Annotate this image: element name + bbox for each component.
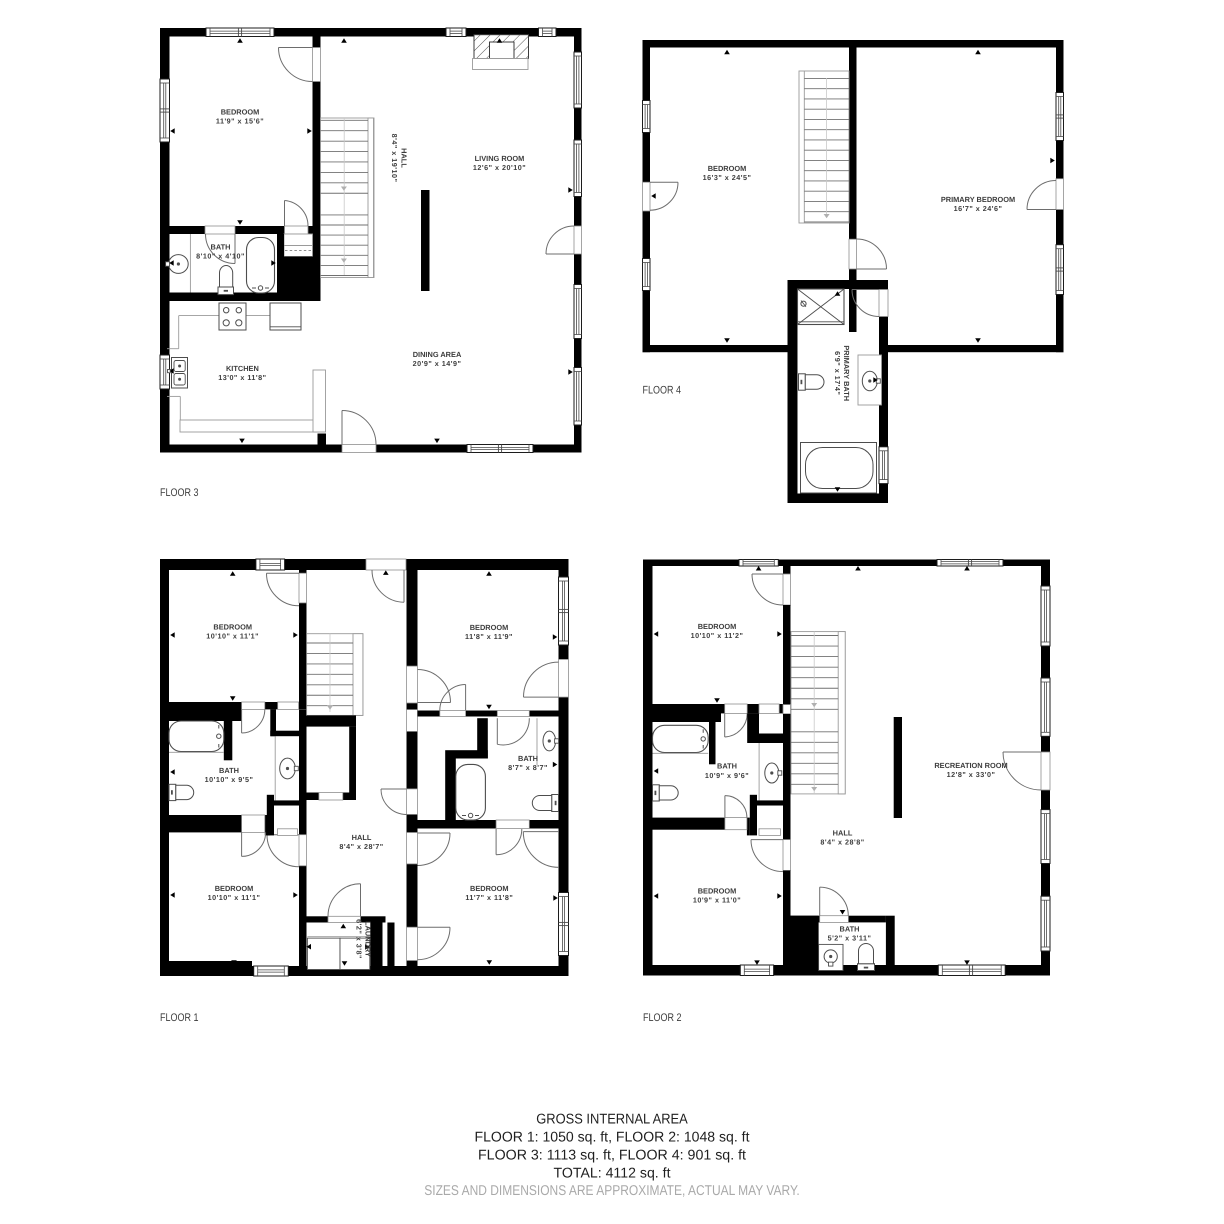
svg-text:10'10" x 11'1": 10'10" x 11'1" [206, 632, 259, 641]
svg-text:PRIMARY BATH: PRIMARY BATH [842, 345, 851, 401]
svg-text:KITCHEN: KITCHEN [226, 364, 259, 373]
svg-text:BATH: BATH [717, 762, 737, 771]
svg-text:BEDROOM: BEDROOM [470, 623, 509, 632]
svg-text:10'9" x 9'6": 10'9" x 9'6" [705, 771, 749, 780]
svg-text:LIVING ROOM: LIVING ROOM [475, 154, 525, 163]
svg-text:11'9" x 15'6": 11'9" x 15'6" [216, 117, 264, 126]
svg-text:BEDROOM: BEDROOM [698, 887, 737, 896]
svg-text:12'8" x 33'0": 12'8" x 33'0" [947, 770, 996, 779]
svg-text:11'7" x 11'8": 11'7" x 11'8" [465, 893, 513, 902]
svg-text:10'10" x 9'5": 10'10" x 9'5" [205, 775, 254, 784]
svg-text:12'6" x 20'10": 12'6" x 20'10" [473, 163, 526, 172]
svg-text:FLOOR 1: FLOOR 1 [160, 1012, 199, 1024]
svg-text:BEDROOM: BEDROOM [215, 884, 254, 893]
svg-text:10'9" x 11'0": 10'9" x 11'0" [693, 896, 741, 905]
svg-text:8'4" x 28'7": 8'4" x 28'7" [339, 842, 383, 851]
svg-text:PRIMARY BEDROOM: PRIMARY BEDROOM [941, 195, 1015, 204]
svg-text:10'10" x 11'2": 10'10" x 11'2" [691, 631, 744, 640]
svg-text:20'9" x 14'9": 20'9" x 14'9" [413, 359, 462, 368]
svg-text:BATH: BATH [219, 766, 239, 775]
svg-text:13'0" x 11'8": 13'0" x 11'8" [218, 373, 266, 382]
svg-text:8'10" x 4'10": 8'10" x 4'10" [196, 252, 245, 261]
svg-text:FLOOR 4: FLOOR 4 [643, 385, 682, 397]
svg-text:TOTAL: 4112 sq. ft: TOTAL: 4112 sq. ft [554, 1166, 671, 1182]
svg-text:FLOOR 1: 1050 sq. ft, FLOOR 2:: FLOOR 1: 1050 sq. ft, FLOOR 2: 1048 sq. … [475, 1130, 750, 1146]
svg-text:HALL: HALL [352, 833, 372, 842]
svg-text:16'7" x 24'6": 16'7" x 24'6" [954, 204, 1003, 213]
svg-text:BATH: BATH [518, 754, 538, 763]
svg-text:BEDROOM: BEDROOM [708, 164, 747, 173]
svg-text:BEDROOM: BEDROOM [470, 884, 509, 893]
svg-text:11'8" x 11'9": 11'8" x 11'9" [465, 632, 513, 641]
svg-text:HALL: HALL [833, 829, 853, 838]
svg-text:BEDROOM: BEDROOM [221, 108, 260, 117]
svg-text:HALL: HALL [399, 148, 408, 168]
svg-text:FLOOR 3: 1113 sq. ft, FLOOR 4:: FLOOR 3: 1113 sq. ft, FLOOR 4: 901 sq. f… [478, 1148, 746, 1164]
svg-text:FLOOR 3: FLOOR 3 [160, 487, 199, 499]
svg-text:LAUNDRY: LAUNDRY [364, 921, 373, 957]
svg-text:6'9" x 17'4": 6'9" x 17'4" [833, 351, 842, 395]
svg-text:6'2" x 3'8": 6'2" x 3'8" [354, 919, 363, 959]
svg-text:BATH: BATH [840, 925, 860, 934]
svg-text:8'4" x 28'8": 8'4" x 28'8" [820, 838, 864, 847]
svg-text:RECREATION ROOM: RECREATION ROOM [934, 761, 1007, 770]
svg-text:8'4" x 19'10": 8'4" x 19'10" [390, 134, 399, 183]
svg-text:BEDROOM: BEDROOM [698, 622, 737, 631]
svg-text:FLOOR 2: FLOOR 2 [643, 1012, 682, 1024]
svg-text:SIZES AND DIMENSIONS ARE APPRO: SIZES AND DIMENSIONS ARE APPROXIMATE, AC… [424, 1183, 800, 1199]
svg-text:16'3" x 24'5": 16'3" x 24'5" [703, 173, 752, 182]
svg-text:5'2" x 3'11": 5'2" x 3'11" [828, 934, 872, 943]
svg-text:GROSS INTERNAL AREA: GROSS INTERNAL AREA [536, 1112, 688, 1128]
svg-text:BEDROOM: BEDROOM [213, 623, 252, 632]
svg-text:8'7" x 8'7": 8'7" x 8'7" [508, 763, 548, 772]
svg-text:BATH: BATH [211, 243, 231, 252]
svg-text:DINING AREA: DINING AREA [413, 350, 462, 359]
svg-text:10'10" x 11'1": 10'10" x 11'1" [208, 893, 261, 902]
